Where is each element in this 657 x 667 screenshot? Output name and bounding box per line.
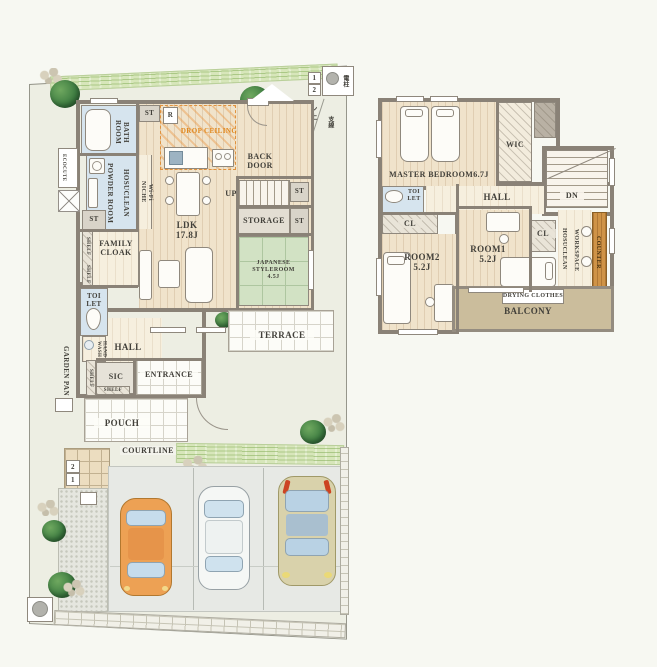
path-service-box (80, 492, 97, 505)
f2-shaft (534, 102, 556, 138)
sofa-icon (185, 247, 213, 303)
hand-wash-basin-icon (84, 340, 94, 350)
rocks-left-1 (36, 500, 60, 516)
utility-pole-icon (326, 72, 339, 85)
counter-label: COUNTER (594, 224, 601, 280)
hand-wash-label: HAND WASH (95, 338, 107, 360)
f1-wall-g (236, 205, 311, 208)
master-bedroom-label: MASTER BEDROOM6.7J (382, 170, 496, 179)
shelf-label-1: SHELF (84, 233, 90, 259)
rocks-left-2 (62, 580, 86, 596)
room2-closet-label: CL (398, 219, 422, 228)
drying-clothes-label: DRYING CLOTHES (502, 293, 564, 300)
dining-chair-3 (202, 176, 211, 185)
f1-wall-h (236, 233, 311, 236)
f1-st-4-label: ST (290, 217, 309, 225)
f1-wall-f (236, 176, 311, 179)
workspace-hosuclean-label: HOSUCLEAN (560, 216, 567, 282)
family-cloak-label: FAMILY CLOAK (94, 239, 138, 257)
equipment-pad (58, 190, 80, 212)
powder-room-label: POWDER ROOM (106, 160, 114, 226)
f2-wall-c (529, 208, 532, 292)
car-orange-light-r (162, 586, 168, 591)
car-orange-roof (128, 528, 164, 560)
entrance-label: ENTRANCE (140, 370, 198, 379)
floor-plan-canvas: 1 2 電柱 支線 土間コン 刷毛仕上 BATH ROOM ST R DROP … (0, 0, 657, 667)
manhole-icon (32, 601, 48, 617)
fridge-label: R (163, 111, 178, 119)
car-beige-rear-glass (285, 538, 329, 556)
f2-wall-b (456, 206, 532, 209)
storage-label: STORAGE (238, 216, 290, 225)
room1-chair (499, 234, 509, 244)
approach-step-1-label: 1 (66, 476, 80, 484)
f2-window-master-left (376, 120, 382, 158)
dn-label: DN (560, 191, 584, 200)
dining-chair-2 (165, 196, 174, 205)
f2-window-room2-bottom (398, 329, 438, 335)
f2-window-room1-balcony (468, 287, 524, 293)
workspace-stool-2 (581, 256, 592, 267)
f2-toilet-label: TOI LET (404, 189, 424, 203)
f1-st-1-label: ST (139, 109, 160, 117)
cooktop-burner-1 (215, 153, 222, 160)
back-door-label: BACK DOOR (240, 152, 280, 170)
f2-window-room2-left (376, 258, 382, 296)
balcony-label: BALCONY (490, 306, 566, 316)
f1-wall-e (236, 176, 239, 308)
drop-ceiling-label: DROP CEILING (180, 127, 238, 135)
workspace-stool-1 (581, 226, 592, 237)
f1-wall-c (80, 229, 138, 232)
japanese-room-label: JAPANESE STYLEROOM 4.5J (239, 260, 308, 281)
f1-window-japanese (308, 250, 314, 290)
dining-chair-4 (202, 196, 211, 205)
bush-left-1 (42, 520, 66, 542)
ecocute-label: ECOCUTE (60, 152, 66, 184)
car-beige-windshield (285, 490, 329, 512)
f2-window-master-2 (430, 96, 458, 102)
f2-window-master-1 (396, 96, 424, 102)
f1-window-ldk-1 (150, 327, 186, 333)
stall-line-2 (263, 468, 264, 610)
sic-label: SIC (100, 372, 132, 381)
f1-window-ldk-2 (196, 327, 226, 333)
room2-chair (425, 297, 435, 307)
wic-label: WIC (498, 140, 532, 149)
car-orange-windshield (126, 510, 166, 526)
car-beige (278, 476, 336, 586)
f1-window-bath (90, 98, 118, 104)
master-bed-1-pillow (405, 109, 423, 117)
f1-st-2-label: ST (82, 215, 106, 223)
side-bricks-right (340, 447, 349, 615)
f1-wall-b (80, 153, 138, 156)
f1-bathroom-label: BATH ROOM (114, 112, 130, 152)
approach-step-2-label: 2 (66, 463, 80, 471)
terrace-label: TERRACE (250, 330, 314, 340)
f1-hosuclean-label: HOSUCLEAN (122, 162, 130, 224)
car-beige-roof (286, 514, 328, 536)
car-white (198, 486, 250, 590)
room1-desk (486, 212, 520, 232)
car-white-rear-glass (205, 556, 243, 572)
master-bed-2-pillow (436, 109, 454, 117)
ldk-label: LDK 17.8J (165, 220, 209, 241)
boundary-step-2-label: 2 (308, 86, 321, 94)
sic-shelf-label-h: SHELF (98, 388, 128, 394)
kitchen-sink-icon (169, 151, 183, 165)
car-orange-light-l (124, 586, 130, 591)
bathtub-icon (85, 109, 111, 151)
wifi-niche-label: Wi-Fi NICHE (139, 162, 153, 222)
rocks-court (322, 414, 346, 432)
tv-board-icon (139, 250, 152, 300)
car-beige-light-l (282, 572, 290, 578)
f2-hall-label: HALL (474, 192, 520, 202)
dining-table-icon (176, 172, 200, 216)
f1-wall-d (80, 285, 138, 288)
car-orange-rear-glass (127, 562, 165, 578)
car-beige-light-r (324, 572, 332, 578)
f2-window-stairs (609, 158, 615, 186)
dining-chair-1 (165, 176, 174, 185)
car-white-roof (205, 520, 243, 554)
courtline-label: COURTLINE (120, 446, 176, 455)
f2-wall-d (496, 100, 499, 186)
garden-pan-label: GARDEN PAN (62, 338, 70, 404)
f1-toilet-label: TOI LET (82, 292, 106, 308)
vanity-counter-icon (88, 178, 98, 208)
f1-st-3-label: ST (290, 187, 309, 195)
living-table-icon (158, 260, 180, 288)
f2-toilet-icon (385, 190, 403, 203)
f1-wall-i (96, 358, 204, 361)
car-orange (120, 498, 172, 596)
f1-wall-a (136, 104, 139, 232)
room1-closet-label: CL (530, 229, 556, 238)
boundary-step-1-label: 1 (308, 74, 321, 82)
room2-desk (434, 284, 454, 322)
sic-shelf-label-v: SHELF (87, 364, 93, 392)
garden-pan-box (55, 398, 73, 412)
room1-label: ROOM1 5.2J (462, 244, 514, 265)
workspace-label: WORKSPACE (572, 220, 579, 280)
room2-label: ROOM2 5.2J (396, 252, 448, 273)
f1-hall-label: HALL (108, 342, 148, 352)
pouch-label: POUCH (94, 418, 150, 428)
room1-bed-pillow (545, 262, 553, 280)
f1-wall-j (133, 358, 136, 396)
cooktop-burner-2 (224, 153, 231, 160)
f1-stairs (238, 180, 290, 207)
car-white-windshield (204, 500, 244, 518)
shelf-label-2: SHELF (84, 261, 90, 287)
stall-line-1 (193, 468, 194, 610)
f2-window-counter (609, 228, 615, 254)
washing-machine-drum (92, 161, 102, 171)
f2-wall-e (380, 212, 458, 215)
utility-pole-label: 電柱 (341, 70, 348, 92)
